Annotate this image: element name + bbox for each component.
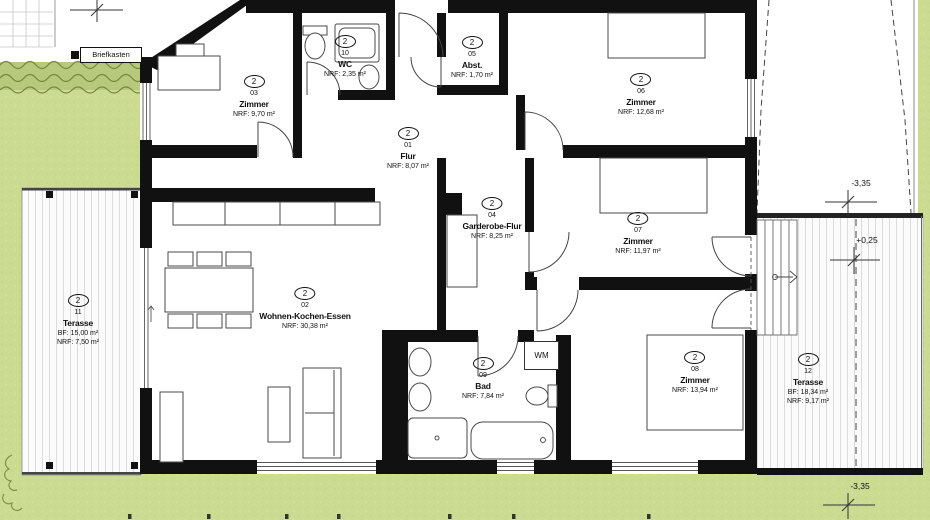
unit-badge: 2 xyxy=(294,287,315,300)
unit-badge: 2 xyxy=(397,127,418,140)
room-name: Flur xyxy=(387,152,429,161)
room-number: 04 xyxy=(462,212,521,219)
unit-badge: 2 xyxy=(243,75,264,88)
unit-badge: 2 xyxy=(631,73,652,86)
room-number: 09 xyxy=(462,372,504,379)
room-number: 05 xyxy=(451,51,493,58)
room-area-nrf: NRF: 9,17 m² xyxy=(787,398,829,405)
bed-zimmer-07 xyxy=(600,158,707,213)
unit-badge: 2 xyxy=(461,36,482,49)
room-area: NRF: 1,70 m² xyxy=(451,72,493,79)
room-name: Zimmer xyxy=(233,100,275,109)
driveway xyxy=(757,0,918,216)
room-label-05-abstellraum: 2 05 Abst. NRF: 1,70 m² xyxy=(451,33,493,79)
room-area-bf: BF: 15,00 m² xyxy=(57,330,99,337)
room-area: NRF: 30,38 m² xyxy=(259,323,350,330)
room-label-10-wc: 2 10 WC NRF: 2,35 m² xyxy=(324,32,366,78)
room-area-bf: BF: 18,34 m² xyxy=(787,389,829,396)
room-label-02-wohnen-kochen-essen: 2 02 Wohnen-Kochen-Essen NRF: 30,38 m² xyxy=(259,284,350,330)
room-number: 02 xyxy=(259,302,350,309)
unit-badge: 2 xyxy=(67,294,88,307)
briefkasten-label: Briefkasten xyxy=(80,47,142,63)
room-label-01-flur: 2 01 Flur NRF: 8,07 m² xyxy=(387,124,429,170)
room-number: 10 xyxy=(324,50,366,57)
room-number: 03 xyxy=(233,90,275,97)
room-name: Garderobe-Flur xyxy=(462,222,521,231)
room-number: 01 xyxy=(387,142,429,149)
bed-zimmer-06 xyxy=(608,13,705,58)
room-label-03-zimmer: 2 03 Zimmer NRF: 9,70 m² xyxy=(233,72,275,118)
room-area: NRF: 13,94 m² xyxy=(672,387,718,394)
room-number: 08 xyxy=(672,366,718,373)
room-name: Zimmer xyxy=(615,237,660,246)
unit-badge: 2 xyxy=(481,197,502,210)
room-label-06-zimmer: 2 06 Zimmer NRF: 12,68 m² xyxy=(618,70,664,116)
room-area: NRF: 2,35 m² xyxy=(324,71,366,78)
room-area: NRF: 8,07 m² xyxy=(387,163,429,170)
room-label-09-bad: 2 09 Bad NRF: 7,84 m² xyxy=(462,354,504,400)
room-number: 11 xyxy=(57,309,99,316)
room-number: 06 xyxy=(618,88,664,95)
room-area-nrf: NRF: 7,50 m² xyxy=(57,339,99,346)
room-name: Terasse xyxy=(787,378,829,387)
room-area: NRF: 7,84 m² xyxy=(462,393,504,400)
room-label-04-garderobe-flur: 2 04 Garderobe-Flur NRF: 8,25 m² xyxy=(462,194,521,240)
briefkasten-marker xyxy=(71,51,79,59)
kitchen-counter xyxy=(173,202,380,225)
room-area: NRF: 12,68 m² xyxy=(618,109,664,116)
room-area: NRF: 8,25 m² xyxy=(462,233,521,240)
room-name: WC xyxy=(324,60,366,69)
room-number: 07 xyxy=(615,227,660,234)
room-label-08-zimmer: 2 08 Zimmer NRF: 13,94 m² xyxy=(672,348,718,394)
room-name: Zimmer xyxy=(672,376,718,385)
room-name: Zimmer xyxy=(618,98,664,107)
unit-badge: 2 xyxy=(797,353,818,366)
floor-plan-canvas: Briefkasten WM -3,35 +0,25 -3,35 2 01 Fl… xyxy=(0,0,930,520)
elevation-label-bottom-right: -3,35 xyxy=(850,481,869,491)
room-label-07-zimmer: 2 07 Zimmer NRF: 11,97 m² xyxy=(615,209,660,255)
unit-badge: 2 xyxy=(472,357,493,370)
room-area: NRF: 9,70 m² xyxy=(233,111,275,118)
room-name: Wohnen-Kochen-Essen xyxy=(259,312,350,321)
elevation-label-mid-right: +0,25 xyxy=(856,235,878,245)
elevation-label-top-right: -3,35 xyxy=(851,178,870,188)
tv-board xyxy=(160,392,183,462)
hedge xyxy=(0,62,144,94)
room-name: Bad xyxy=(462,382,504,391)
unit-badge: 2 xyxy=(685,351,706,364)
room-name: Abst. xyxy=(451,61,493,70)
room-label-11-terasse: 2 11 Terasse BF: 15,00 m² NRF: 7,50 m² xyxy=(57,291,99,346)
room-number: 12 xyxy=(787,368,829,375)
unit-badge: 2 xyxy=(334,35,355,48)
unit-badge: 2 xyxy=(627,212,648,225)
room-name: Terasse xyxy=(57,319,99,328)
washing-machine-label: WM xyxy=(524,341,559,370)
entry-stairs xyxy=(751,220,797,335)
coffee-table xyxy=(268,387,290,442)
dining-table-set xyxy=(165,252,253,328)
room-area: NRF: 11,97 m² xyxy=(615,248,660,255)
sofa xyxy=(303,368,341,458)
room-label-12-terasse: 2 12 Terasse BF: 18,34 m² NRF: 9,17 m² xyxy=(787,350,829,405)
